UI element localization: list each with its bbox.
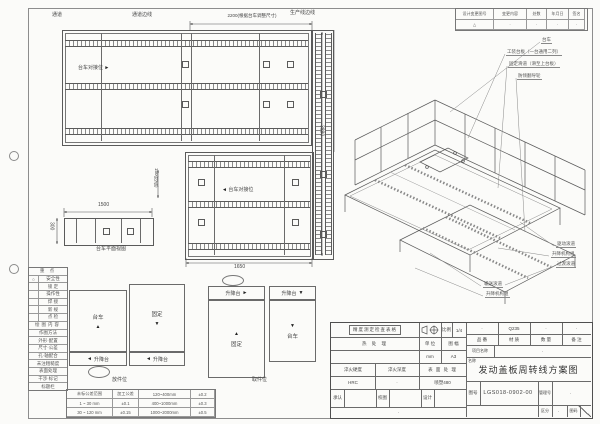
approve-signature	[342, 389, 377, 408]
legend-item: 安全性	[39, 276, 67, 283]
sketch-lift-strip: ◄ 升降台	[69, 352, 127, 366]
projection-cell	[419, 323, 442, 338]
passage-label: 通道	[52, 13, 62, 19]
quench-depth-label: 淬火深度	[375, 363, 420, 377]
registration-mark-icon	[9, 264, 19, 274]
dim-1650: 1650	[234, 265, 245, 271]
iso-label-lifter: 升降机构组	[551, 251, 576, 258]
legend-item: 孔·轴配合	[29, 353, 67, 360]
sketch-trolley-box: ▼ 台车	[269, 300, 316, 362]
plan-post	[182, 61, 189, 68]
legend-item: 锁 定	[39, 283, 67, 290]
arrow-down-icon: ▼	[290, 323, 295, 329]
revision-table: 设计变更图号 变更内容 处数 年月日 签名 △ · · · ·	[455, 8, 588, 31]
drawing-title: 发动盖板周转线方案图	[478, 363, 578, 376]
plan-divider	[259, 33, 260, 141]
roller-strip	[188, 201, 310, 208]
iso-label-drive: 驱动滚道	[556, 241, 576, 248]
trolley-divider	[95, 219, 96, 243]
plan-divider	[284, 155, 285, 255]
legend-item: 标题栏	[29, 383, 67, 390]
sheet-size-value: A3	[441, 350, 467, 364]
passage-edge-label: 通道边线	[132, 13, 152, 19]
sketch-caption-pick: 取件位	[252, 378, 267, 384]
arrow-up-icon: ▲	[234, 331, 239, 337]
tolerance-cell: 1000~2000mm	[139, 408, 191, 417]
drawing-title-cell: 名称 发动盖板周转线方案图	[466, 357, 591, 382]
legend-item: 表面处理	[29, 368, 67, 375]
revision-cell: ·	[569, 20, 585, 31]
unit-value: mm	[419, 350, 442, 364]
iso-label-transition: 过渡滚道	[556, 261, 576, 268]
tolerance-cell: 30 ~ 120 mm	[67, 408, 113, 417]
legend-item: 干涉·标记	[29, 376, 67, 383]
iso-label-guide: 固定滑道（滑至上台板）	[508, 61, 560, 68]
plan-post	[287, 61, 294, 68]
revision-header: 年月日	[547, 9, 569, 20]
arrow-left-icon: ◄	[222, 187, 227, 193]
revision-cell: △	[456, 20, 494, 31]
legend-item: 外形·配置	[29, 337, 67, 344]
iso-label-trolley: 台车	[541, 37, 552, 44]
tolerance-cell: ±0.15	[113, 408, 139, 417]
dock-position-label: ◄ 台车对接位	[222, 188, 253, 194]
legend-mark	[29, 291, 39, 298]
operator-position-icon	[222, 275, 244, 286]
trolley-divider	[121, 219, 122, 243]
plan-view-main	[62, 30, 312, 146]
surface-treatment-label: 表 面 处 理	[419, 363, 467, 377]
revision-cell: ·	[527, 20, 547, 31]
iso-label-platform: 工装台板（一台通用二列）	[506, 49, 562, 56]
tolerance-cell: ±0.2	[191, 390, 215, 399]
sketch-fixed-label: 固定	[151, 310, 162, 318]
plan-post	[198, 219, 205, 226]
arrow-down-icon: ▼	[299, 290, 304, 296]
sketch-lift-label: 升降台	[94, 356, 109, 363]
quench-hardness-value: HRC	[331, 376, 376, 390]
plan-post	[198, 179, 205, 186]
arrow-right-icon: ►	[104, 65, 109, 71]
plan-post	[320, 91, 327, 98]
heat-treatment-value	[331, 350, 420, 364]
code-diagonal-cell	[578, 405, 591, 417]
tolerance-cell: 未标公差范围	[67, 390, 113, 399]
dock-position-label: 台车对接位 ►	[78, 66, 109, 72]
tolerance-cell: 400~1000mm	[139, 399, 191, 408]
legend-table: 重 点 ○安全性 锁 定 操作性 焊 接 新 规 点 检 绘图内容 作图方法 外…	[28, 267, 68, 391]
sketch-trolley-box: 台车 ▲	[69, 290, 127, 352]
sketch-caption-load: 放件位	[112, 378, 127, 384]
legend-mark	[29, 306, 39, 313]
registration-mark-icon	[9, 151, 19, 161]
name-label: 名称	[468, 358, 476, 364]
plan-post	[320, 171, 327, 178]
plan-post	[182, 101, 189, 108]
legend-mark	[29, 299, 39, 306]
plan-divider	[101, 33, 102, 141]
sketch-lift-label: 升降台	[226, 290, 241, 297]
legend-mark	[29, 314, 39, 321]
first-angle-projection-icon	[421, 325, 439, 335]
plan-post	[292, 179, 299, 186]
tolerance-cell: ±0.3	[191, 399, 215, 408]
iso-label-lifter2: 升降机构组	[485, 291, 510, 298]
tolerance-table: 未标公差范围 加工公差 120~400mm ±0.2 1 ~ 30 mm ±0.…	[66, 389, 216, 418]
class-value: ·	[550, 405, 568, 417]
legend-item: 未注粗糙度	[29, 360, 67, 367]
drawing-sheet: { "revision": { "headers": ["设计变更图号", "变…	[0, 0, 600, 424]
revision-cell: ·	[547, 20, 569, 31]
plan-divider	[181, 33, 182, 141]
heat-treatment-label: 热 处 理	[331, 337, 420, 351]
quench-depth-value: ·	[375, 376, 420, 390]
iso-label-conveyor: 输送滚道	[483, 281, 503, 288]
revision-header: 变更内容	[494, 9, 527, 20]
dim-3880: 3880	[318, 125, 324, 136]
dim-300: 300	[48, 222, 54, 230]
iso-label-antitip: 防倾翻导轮	[517, 73, 542, 80]
sketch-lift-label: 升降台	[153, 356, 168, 363]
tolerance-cell: 1 ~ 30 mm	[67, 399, 113, 408]
unit-label: 单 位	[419, 337, 442, 351]
plan-post	[292, 219, 299, 226]
legend-mark: ○	[29, 276, 39, 283]
mgmt-no-value: ·	[550, 381, 591, 406]
production-line-conveyor	[312, 30, 334, 260]
legend-title: 重 点	[29, 268, 67, 275]
production-edge-label: 生产线边线	[290, 11, 315, 17]
tolerance-cell: 120~400mm	[139, 390, 191, 399]
sketch-fixed-box: 固定 ▼	[129, 284, 185, 352]
dim-150: 150(可调)	[153, 168, 158, 188]
tolerance-cell: ±0.1	[113, 399, 139, 408]
plan-post	[320, 231, 327, 238]
inspection-cell: 精度测定检查表格	[331, 323, 420, 338]
revision-header: 签名	[569, 9, 585, 20]
drawing-no-value: LGS018-0902-00	[478, 381, 539, 406]
tolerance-cell: ±0.5	[191, 408, 215, 417]
sketch-trolley-label: 台车	[287, 332, 298, 340]
dim-1500: 1500	[98, 203, 109, 209]
tolerance-cell: 加工公差	[113, 390, 139, 399]
trolley-caption: 台车平面视图	[96, 247, 126, 253]
sketch-lift-strip: ◄ 升降台	[129, 352, 185, 366]
legend-mark	[29, 283, 39, 290]
revision-header: 处数	[527, 9, 547, 20]
revision-cell: ·	[494, 20, 527, 31]
roller-strip	[188, 243, 310, 250]
operator-position-icon	[88, 366, 110, 378]
check-signature	[387, 389, 422, 408]
sketch-fixed-label: 固定	[231, 340, 242, 348]
legend-item: 焊 接	[39, 299, 67, 306]
roller-strip	[315, 33, 322, 255]
trolley-post	[127, 228, 134, 235]
inspection-label: 精度测定检查表格	[349, 325, 401, 335]
legend-item: 点 检	[39, 314, 67, 321]
design-signature	[432, 389, 467, 408]
scale-value: 1/4	[452, 323, 467, 338]
footer-empty-cell	[466, 405, 539, 417]
surface-treatment-value: 喷塑480	[419, 376, 467, 390]
arrow-up-icon: ▲	[96, 324, 101, 330]
arrow-left-icon: ◄	[146, 356, 151, 362]
roller-strip	[188, 161, 310, 168]
title-block: 精度测定检查表格 比例 1/4 热 处 理 单 位 图 幅 mm A3 淬火硬度…	[330, 322, 593, 419]
sketch-lift-strip: 升降台 ►	[208, 286, 265, 300]
sketch-fixed-box: ▲ 固定	[208, 300, 265, 378]
quench-hardness-label: 淬火硬度	[331, 363, 376, 377]
trolley-divider	[76, 219, 77, 243]
sketch-lift-strip: 升降台 ▼	[269, 286, 316, 300]
sketch-trolley-label: 台车	[92, 313, 103, 321]
plan-post	[287, 101, 294, 108]
plan-divider	[214, 155, 215, 255]
plan-divider	[191, 33, 192, 141]
plan-post	[263, 101, 270, 108]
trolley-post	[103, 228, 110, 235]
arrow-right-icon: ►	[243, 290, 248, 296]
legend-item: 尺寸·公差	[29, 345, 67, 352]
revision-header: 设计变更图号	[456, 9, 494, 20]
legend-section: 绘图内容	[29, 322, 67, 329]
trolley-plan-view	[64, 218, 154, 246]
arrow-down-icon: ▼	[155, 321, 160, 327]
plan-post	[263, 61, 270, 68]
arrow-left-icon: ◄	[87, 356, 92, 362]
sketch-lift-label: 升降台	[282, 290, 297, 297]
signature-footer: ·	[331, 407, 467, 417]
roller-strip	[325, 33, 332, 255]
legend-item: 新 规	[39, 306, 67, 313]
sheet-size-label: 图 幅	[441, 337, 467, 351]
legend-item: 作图方法	[29, 330, 67, 337]
legend-item: 操作性	[39, 291, 67, 298]
trolley-divider	[140, 219, 141, 243]
plan-view-secondary	[185, 152, 314, 260]
